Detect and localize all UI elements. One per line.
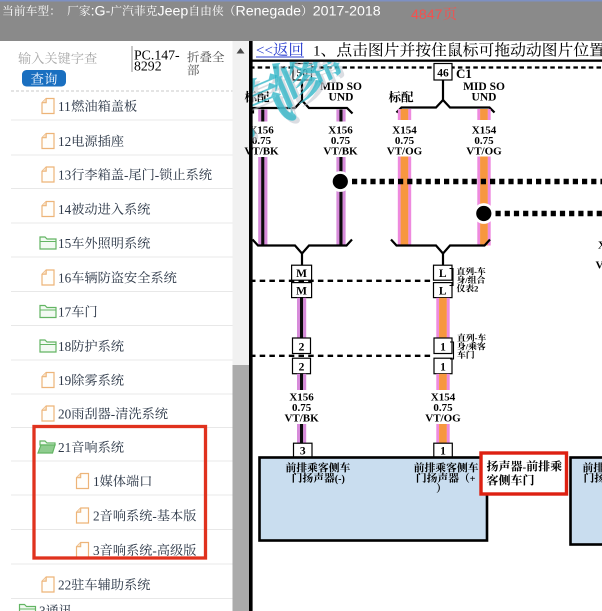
svg-text:2: 2 bbox=[299, 341, 305, 353]
svg-text:VT/OG: VT/OG bbox=[425, 412, 461, 424]
svg-text:19: 19 bbox=[58, 373, 72, 388]
svg-text:20: 20 bbox=[58, 406, 72, 421]
svg-text:4847: 4847 bbox=[411, 7, 443, 23]
svg-text:46: 46 bbox=[437, 68, 449, 80]
svg-text:2: 2 bbox=[93, 508, 100, 523]
svg-text:2: 2 bbox=[299, 362, 305, 374]
svg-text:VT/OG: VT/OG bbox=[387, 146, 423, 158]
svg-text:L: L bbox=[439, 286, 447, 298]
svg-text:1: 1 bbox=[313, 44, 321, 60]
svg-text:8292: 8292 bbox=[134, 59, 162, 74]
svg-text:11: 11 bbox=[58, 99, 71, 114]
svg-text:VT: VT bbox=[596, 260, 602, 272]
svg-text:1: 1 bbox=[440, 362, 446, 374]
svg-text:12: 12 bbox=[58, 134, 71, 149]
svg-text:UND: UND bbox=[472, 92, 497, 104]
svg-text:16: 16 bbox=[58, 270, 72, 285]
svg-text:1: 1 bbox=[93, 474, 100, 489]
svg-text:14: 14 bbox=[58, 202, 72, 217]
svg-text:VT/BK: VT/BK bbox=[323, 146, 358, 158]
svg-text:3: 3 bbox=[300, 446, 306, 458]
svg-text:17: 17 bbox=[58, 304, 72, 319]
svg-text:3: 3 bbox=[93, 543, 100, 558]
svg-text:VT/BK: VT/BK bbox=[284, 412, 319, 424]
svg-text:13: 13 bbox=[58, 167, 72, 182]
svg-text:VT/OG: VT/OG bbox=[466, 146, 502, 158]
svg-text:UND: UND bbox=[329, 92, 354, 104]
svg-text:-: - bbox=[523, 462, 527, 474]
svg-text:-: - bbox=[111, 406, 115, 421]
svg-text:L: L bbox=[439, 268, 447, 280]
svg-text:22: 22 bbox=[58, 577, 71, 592]
svg-text:-: - bbox=[152, 508, 156, 523]
svg-text:C1: C1 bbox=[456, 66, 472, 81]
svg-text:-: - bbox=[474, 267, 477, 277]
svg-text:-: - bbox=[124, 167, 128, 182]
svg-text:1: 1 bbox=[440, 446, 446, 458]
svg-text:2017-2018: 2017-2018 bbox=[313, 4, 381, 20]
svg-text:-: - bbox=[152, 543, 156, 558]
svg-text:(-): (-) bbox=[335, 474, 345, 485]
svg-text:M: M bbox=[296, 268, 307, 280]
svg-text:1: 1 bbox=[440, 341, 446, 353]
svg-text::G-: :G- bbox=[91, 4, 111, 20]
svg-text:-: - bbox=[155, 167, 159, 182]
svg-text:-: - bbox=[475, 333, 478, 343]
svg-text:Renegade: Renegade bbox=[236, 4, 302, 20]
svg-text:18: 18 bbox=[58, 339, 72, 354]
svg-text:X8: X8 bbox=[598, 240, 602, 252]
svg-text:2: 2 bbox=[474, 284, 478, 294]
svg-text:Jeep: Jeep bbox=[158, 4, 189, 20]
svg-text:M: M bbox=[296, 286, 307, 298]
svg-text:15: 15 bbox=[58, 236, 72, 251]
svg-text:21: 21 bbox=[58, 440, 71, 455]
svg-text:3: 3 bbox=[39, 603, 46, 611]
svg-text:+: + bbox=[470, 474, 476, 485]
